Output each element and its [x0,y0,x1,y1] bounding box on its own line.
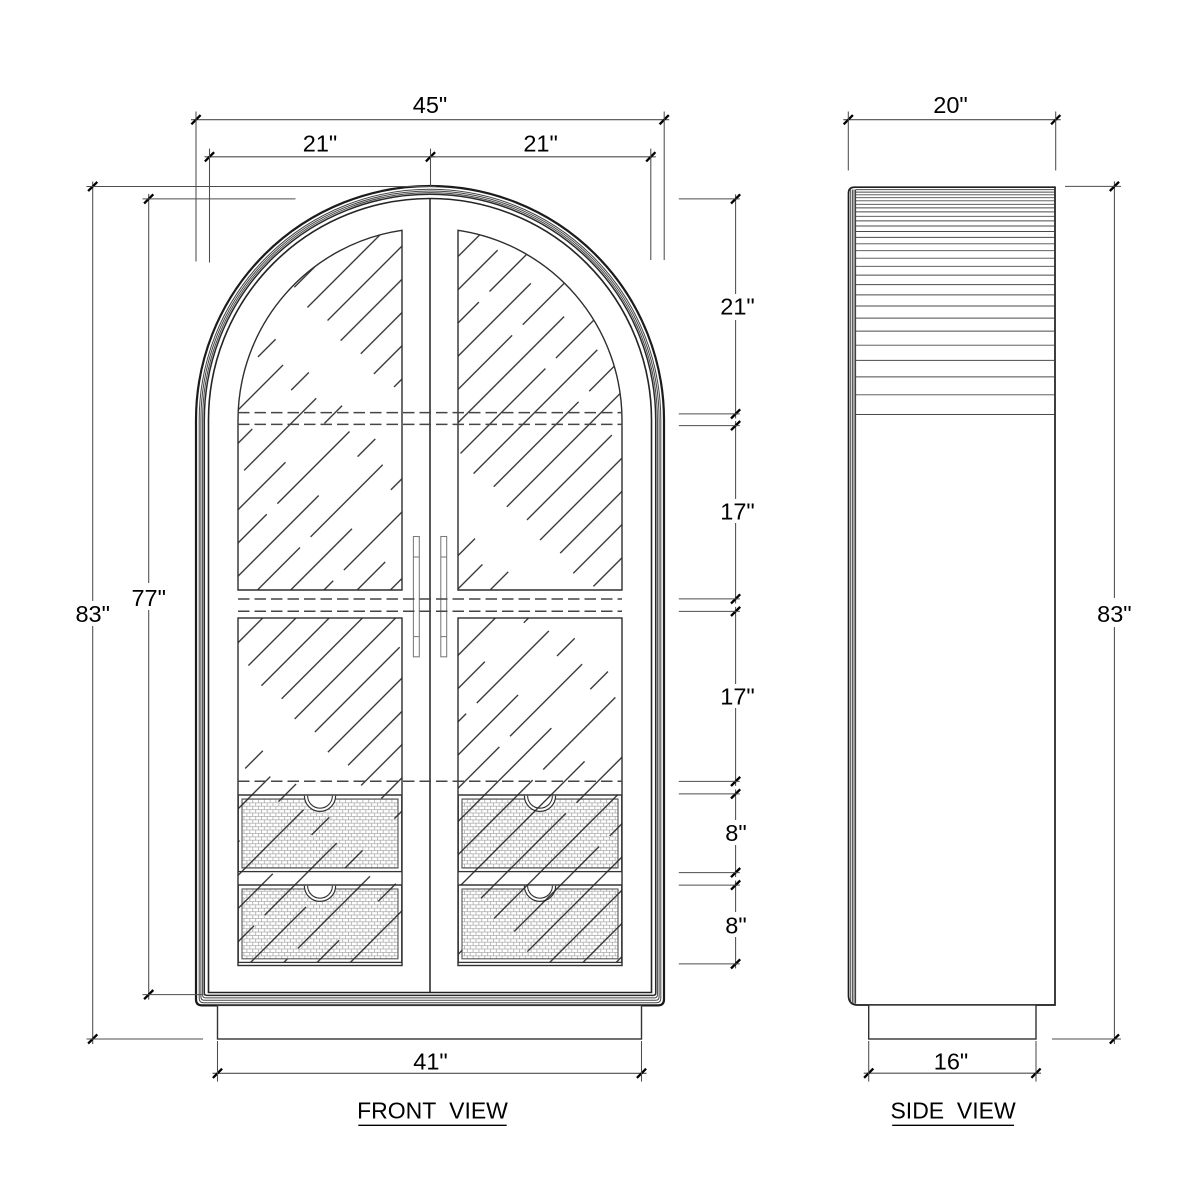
svg-text:45": 45" [413,92,447,118]
svg-text:21": 21" [523,131,557,157]
svg-text:77": 77" [131,585,165,611]
svg-text:21": 21" [303,131,337,157]
svg-text:8": 8" [725,820,746,846]
svg-text:16": 16" [934,1049,968,1075]
svg-text:17": 17" [720,684,754,710]
svg-text:83": 83" [75,601,109,627]
svg-text:SIDE VIEW: SIDE VIEW [890,1097,1016,1123]
svg-text:21": 21" [720,294,754,320]
svg-text:20": 20" [933,92,967,118]
svg-text:FRONT VIEW: FRONT VIEW [357,1097,508,1123]
svg-text:83": 83" [1097,601,1131,627]
svg-text:17": 17" [720,499,754,525]
svg-text:41": 41" [413,1049,447,1075]
svg-text:8": 8" [725,913,746,939]
